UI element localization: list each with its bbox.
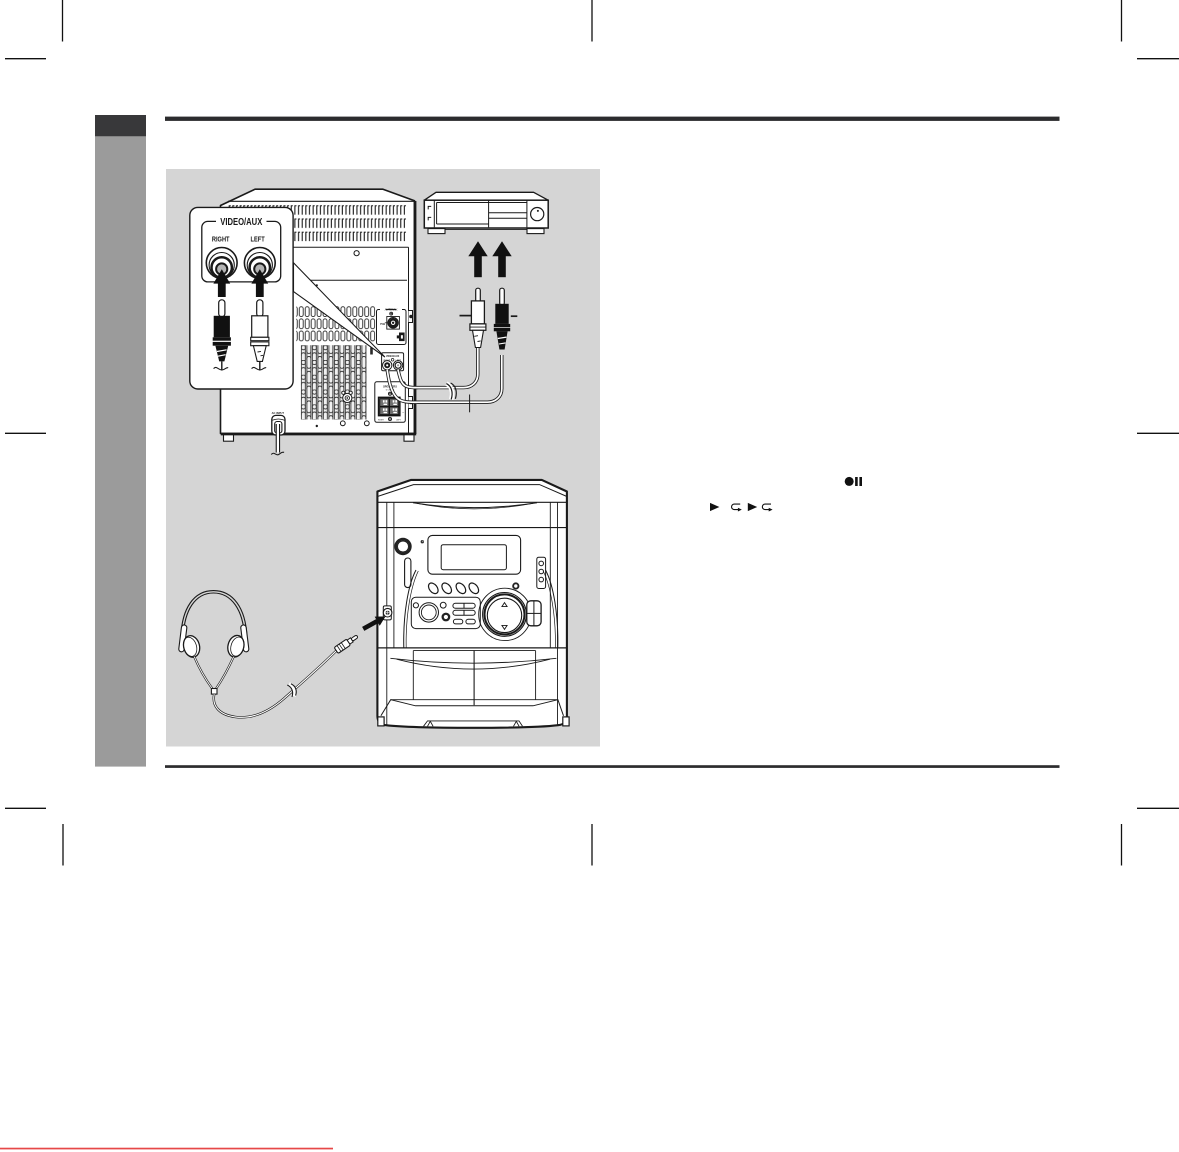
svg-text:RIGHT: RIGHT bbox=[378, 419, 385, 421]
svg-text:RIGHT: RIGHT bbox=[212, 236, 230, 244]
svg-text:75Ω: 75Ω bbox=[380, 322, 385, 326]
svg-text:LEFT: LEFT bbox=[251, 236, 265, 244]
svg-text:−: − bbox=[402, 411, 404, 415]
svg-text:VIDEO/AUX: VIDEO/AUX bbox=[220, 216, 262, 227]
svg-text:AC INPUT: AC INPUT bbox=[272, 411, 285, 415]
svg-text:ANTENNA: ANTENNA bbox=[384, 308, 398, 312]
svg-text:VIDEO/AUX: VIDEO/AUX bbox=[386, 355, 400, 358]
